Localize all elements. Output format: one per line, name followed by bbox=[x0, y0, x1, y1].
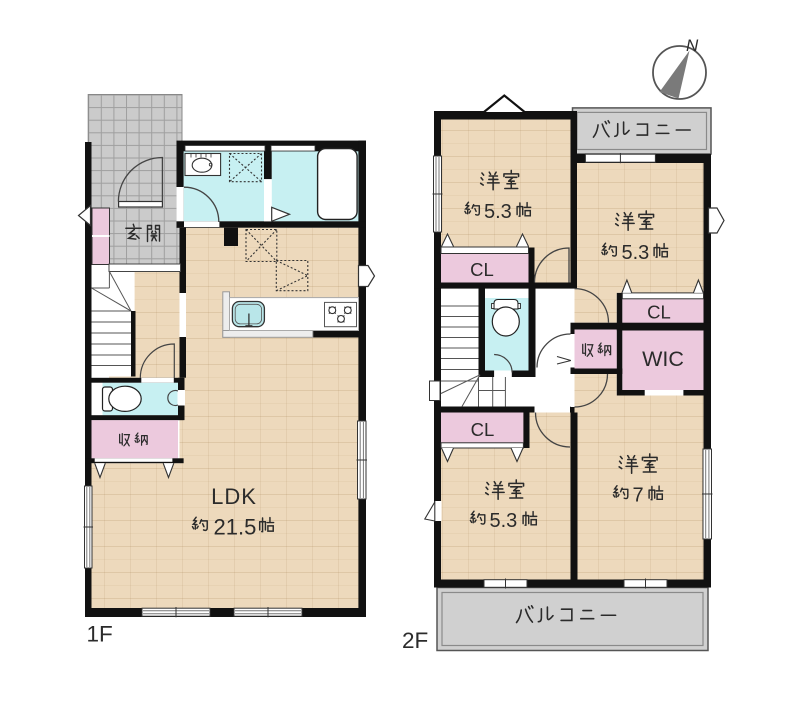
svg-text:CL: CL bbox=[647, 302, 671, 323]
svg-text:5.3: 5.3 bbox=[490, 510, 518, 532]
svg-text:7: 7 bbox=[633, 485, 644, 507]
svg-text:CL: CL bbox=[470, 259, 494, 280]
svg-text:N: N bbox=[686, 36, 699, 55]
svg-text:21.5: 21.5 bbox=[214, 515, 257, 540]
svg-text:2F: 2F bbox=[402, 628, 428, 653]
svg-text:LDK: LDK bbox=[211, 484, 257, 509]
svg-text:1F: 1F bbox=[87, 622, 113, 647]
svg-text:WIC: WIC bbox=[642, 347, 684, 371]
svg-text:5.3: 5.3 bbox=[484, 201, 512, 223]
svg-text:5.3: 5.3 bbox=[622, 242, 650, 264]
svg-text:CL: CL bbox=[471, 419, 495, 440]
